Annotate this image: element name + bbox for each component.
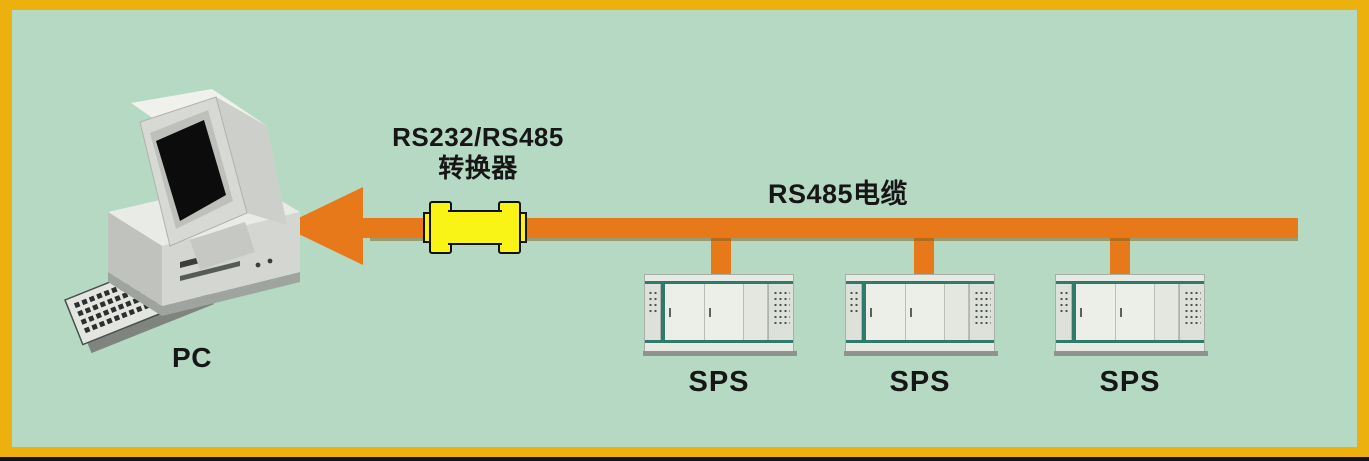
cabinet-door: [945, 284, 969, 342]
cabinet-control-panel: [969, 284, 994, 342]
converter-label-line1: RS232/RS485: [358, 122, 598, 153]
cabinet-door: [1116, 284, 1156, 342]
cable-label: RS485电缆: [700, 172, 976, 211]
cabinet-door: [744, 284, 768, 342]
cabinet-control-panel: [846, 284, 862, 342]
sps-label: SPS: [644, 366, 794, 399]
bottom-black-bar: [0, 457, 1369, 461]
cabinet-door: [1155, 284, 1179, 342]
sps-label: SPS: [845, 366, 995, 399]
cabinet-control-panel: [1056, 284, 1072, 342]
cabinet-door: [1076, 284, 1116, 342]
cabinet-door: [906, 284, 946, 342]
cabinet-door: [665, 284, 705, 342]
sps-unit-2: SPS: [845, 274, 995, 399]
converter-label: RS232/RS485 转换器: [358, 122, 598, 184]
cabinet-control-panel: [645, 284, 661, 342]
sps-unit-3: SPS: [1055, 274, 1205, 399]
converter-label-line2: 转换器: [358, 153, 598, 184]
pc-label: PC: [142, 342, 242, 374]
cabinet-door: [866, 284, 906, 342]
converter-icon: [423, 201, 527, 254]
sps-cabinet-icon: [1055, 274, 1205, 352]
diagram-canvas: SPS SPS: [0, 0, 1369, 461]
sps-cabinet-icon: [845, 274, 995, 352]
sps-unit-1: SPS: [644, 274, 794, 399]
sps-cabinet-icon: [644, 274, 794, 352]
cabinet-door: [705, 284, 745, 342]
cabinet-control-panel: [1179, 284, 1204, 342]
converter-body: [448, 210, 502, 245]
sps-label: SPS: [1055, 366, 1205, 399]
cabinet-control-panel: [768, 284, 793, 342]
